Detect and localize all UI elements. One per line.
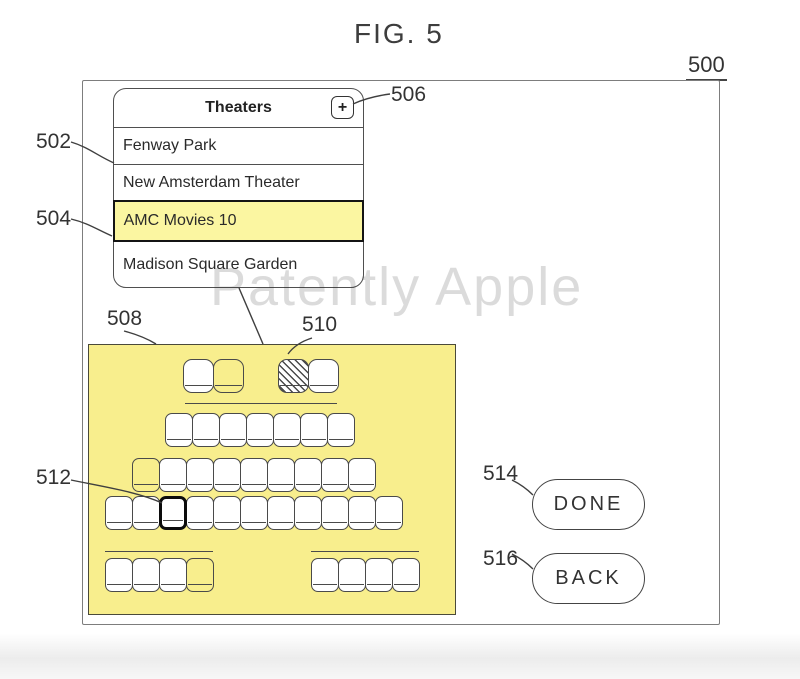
add-theater-button[interactable]: + — [331, 96, 354, 119]
theater-list-item-selected[interactable]: AMC Movies 10 — [113, 200, 365, 242]
figure-title: FIG. 5 — [354, 18, 444, 50]
seat-available[interactable] — [348, 496, 376, 530]
seat-row-1 — [165, 413, 354, 447]
seat-vacant[interactable] — [213, 359, 244, 393]
seat-selected[interactable] — [159, 496, 187, 530]
seat-occupied[interactable] — [278, 359, 309, 393]
divider-front-right — [311, 551, 419, 552]
theater-list-item[interactable]: Madison Square Garden — [114, 242, 363, 287]
seat-available[interactable] — [392, 558, 420, 592]
seat-row-3 — [105, 496, 402, 530]
seat-row-balcony-right — [278, 359, 338, 393]
ref-502-theater-list: 502 — [36, 130, 71, 154]
done-button[interactable]: DONE — [532, 479, 645, 530]
ref-508-seat-map: 508 — [107, 307, 142, 331]
seat-available[interactable] — [213, 496, 241, 530]
seat-available[interactable] — [105, 496, 133, 530]
seat-available[interactable] — [132, 496, 160, 530]
ref-504-selected-theater: 504 — [36, 207, 71, 231]
seat-available[interactable] — [375, 496, 403, 530]
page-bottom-shadow — [0, 633, 800, 679]
seat-vacant[interactable] — [132, 458, 160, 492]
seat-available[interactable] — [321, 496, 349, 530]
seat-available[interactable] — [246, 413, 274, 447]
seat-available[interactable] — [159, 558, 187, 592]
seat-available[interactable] — [240, 496, 268, 530]
ref-512-selected-seat: 512 — [36, 466, 71, 490]
seat-map — [88, 344, 456, 615]
seat-row-front-left — [105, 558, 213, 592]
figure-ref-number: 500 — [686, 52, 727, 81]
theaters-panel-title: Theaters — [205, 99, 272, 117]
screen-divider-top — [185, 403, 337, 404]
divider-front-left — [105, 551, 213, 552]
seat-available[interactable] — [183, 359, 214, 393]
seat-available[interactable] — [338, 558, 366, 592]
seat-available[interactable] — [348, 458, 376, 492]
seat-available[interactable] — [311, 558, 339, 592]
theaters-panel-header: Theaters + — [114, 89, 363, 127]
seat-available[interactable] — [273, 413, 301, 447]
seat-available[interactable] — [267, 458, 295, 492]
seat-available[interactable] — [192, 413, 220, 447]
seat-available[interactable] — [267, 496, 295, 530]
seat-available[interactable] — [240, 458, 268, 492]
seat-available[interactable] — [213, 458, 241, 492]
ref-506-add-button: 506 — [391, 83, 426, 107]
ref-510-occupied-seat: 510 — [302, 313, 337, 337]
back-button[interactable]: BACK — [532, 553, 645, 604]
seat-available[interactable] — [219, 413, 247, 447]
seat-available[interactable] — [365, 558, 393, 592]
theater-list-item[interactable]: New Amsterdam Theater — [114, 164, 363, 201]
theater-list-item[interactable]: Fenway Park — [114, 127, 363, 164]
ref-514-done-button: 514 — [483, 462, 518, 486]
theaters-panel: Theaters + Fenway Park New Amsterdam The… — [113, 88, 364, 288]
seat-available[interactable] — [300, 413, 328, 447]
seat-available[interactable] — [132, 558, 160, 592]
seat-available[interactable] — [294, 496, 322, 530]
seat-available[interactable] — [186, 458, 214, 492]
seat-available[interactable] — [159, 458, 187, 492]
seat-row-balcony-left — [183, 359, 243, 393]
seat-available[interactable] — [165, 413, 193, 447]
seat-available[interactable] — [327, 413, 355, 447]
seat-row-2 — [132, 458, 375, 492]
seat-vacant[interactable] — [186, 558, 214, 592]
ref-516-back-button: 516 — [483, 547, 518, 571]
seat-available[interactable] — [321, 458, 349, 492]
seat-row-front-right — [311, 558, 419, 592]
seat-available[interactable] — [105, 558, 133, 592]
seat-available[interactable] — [294, 458, 322, 492]
seat-available[interactable] — [308, 359, 339, 393]
seat-available[interactable] — [186, 496, 214, 530]
